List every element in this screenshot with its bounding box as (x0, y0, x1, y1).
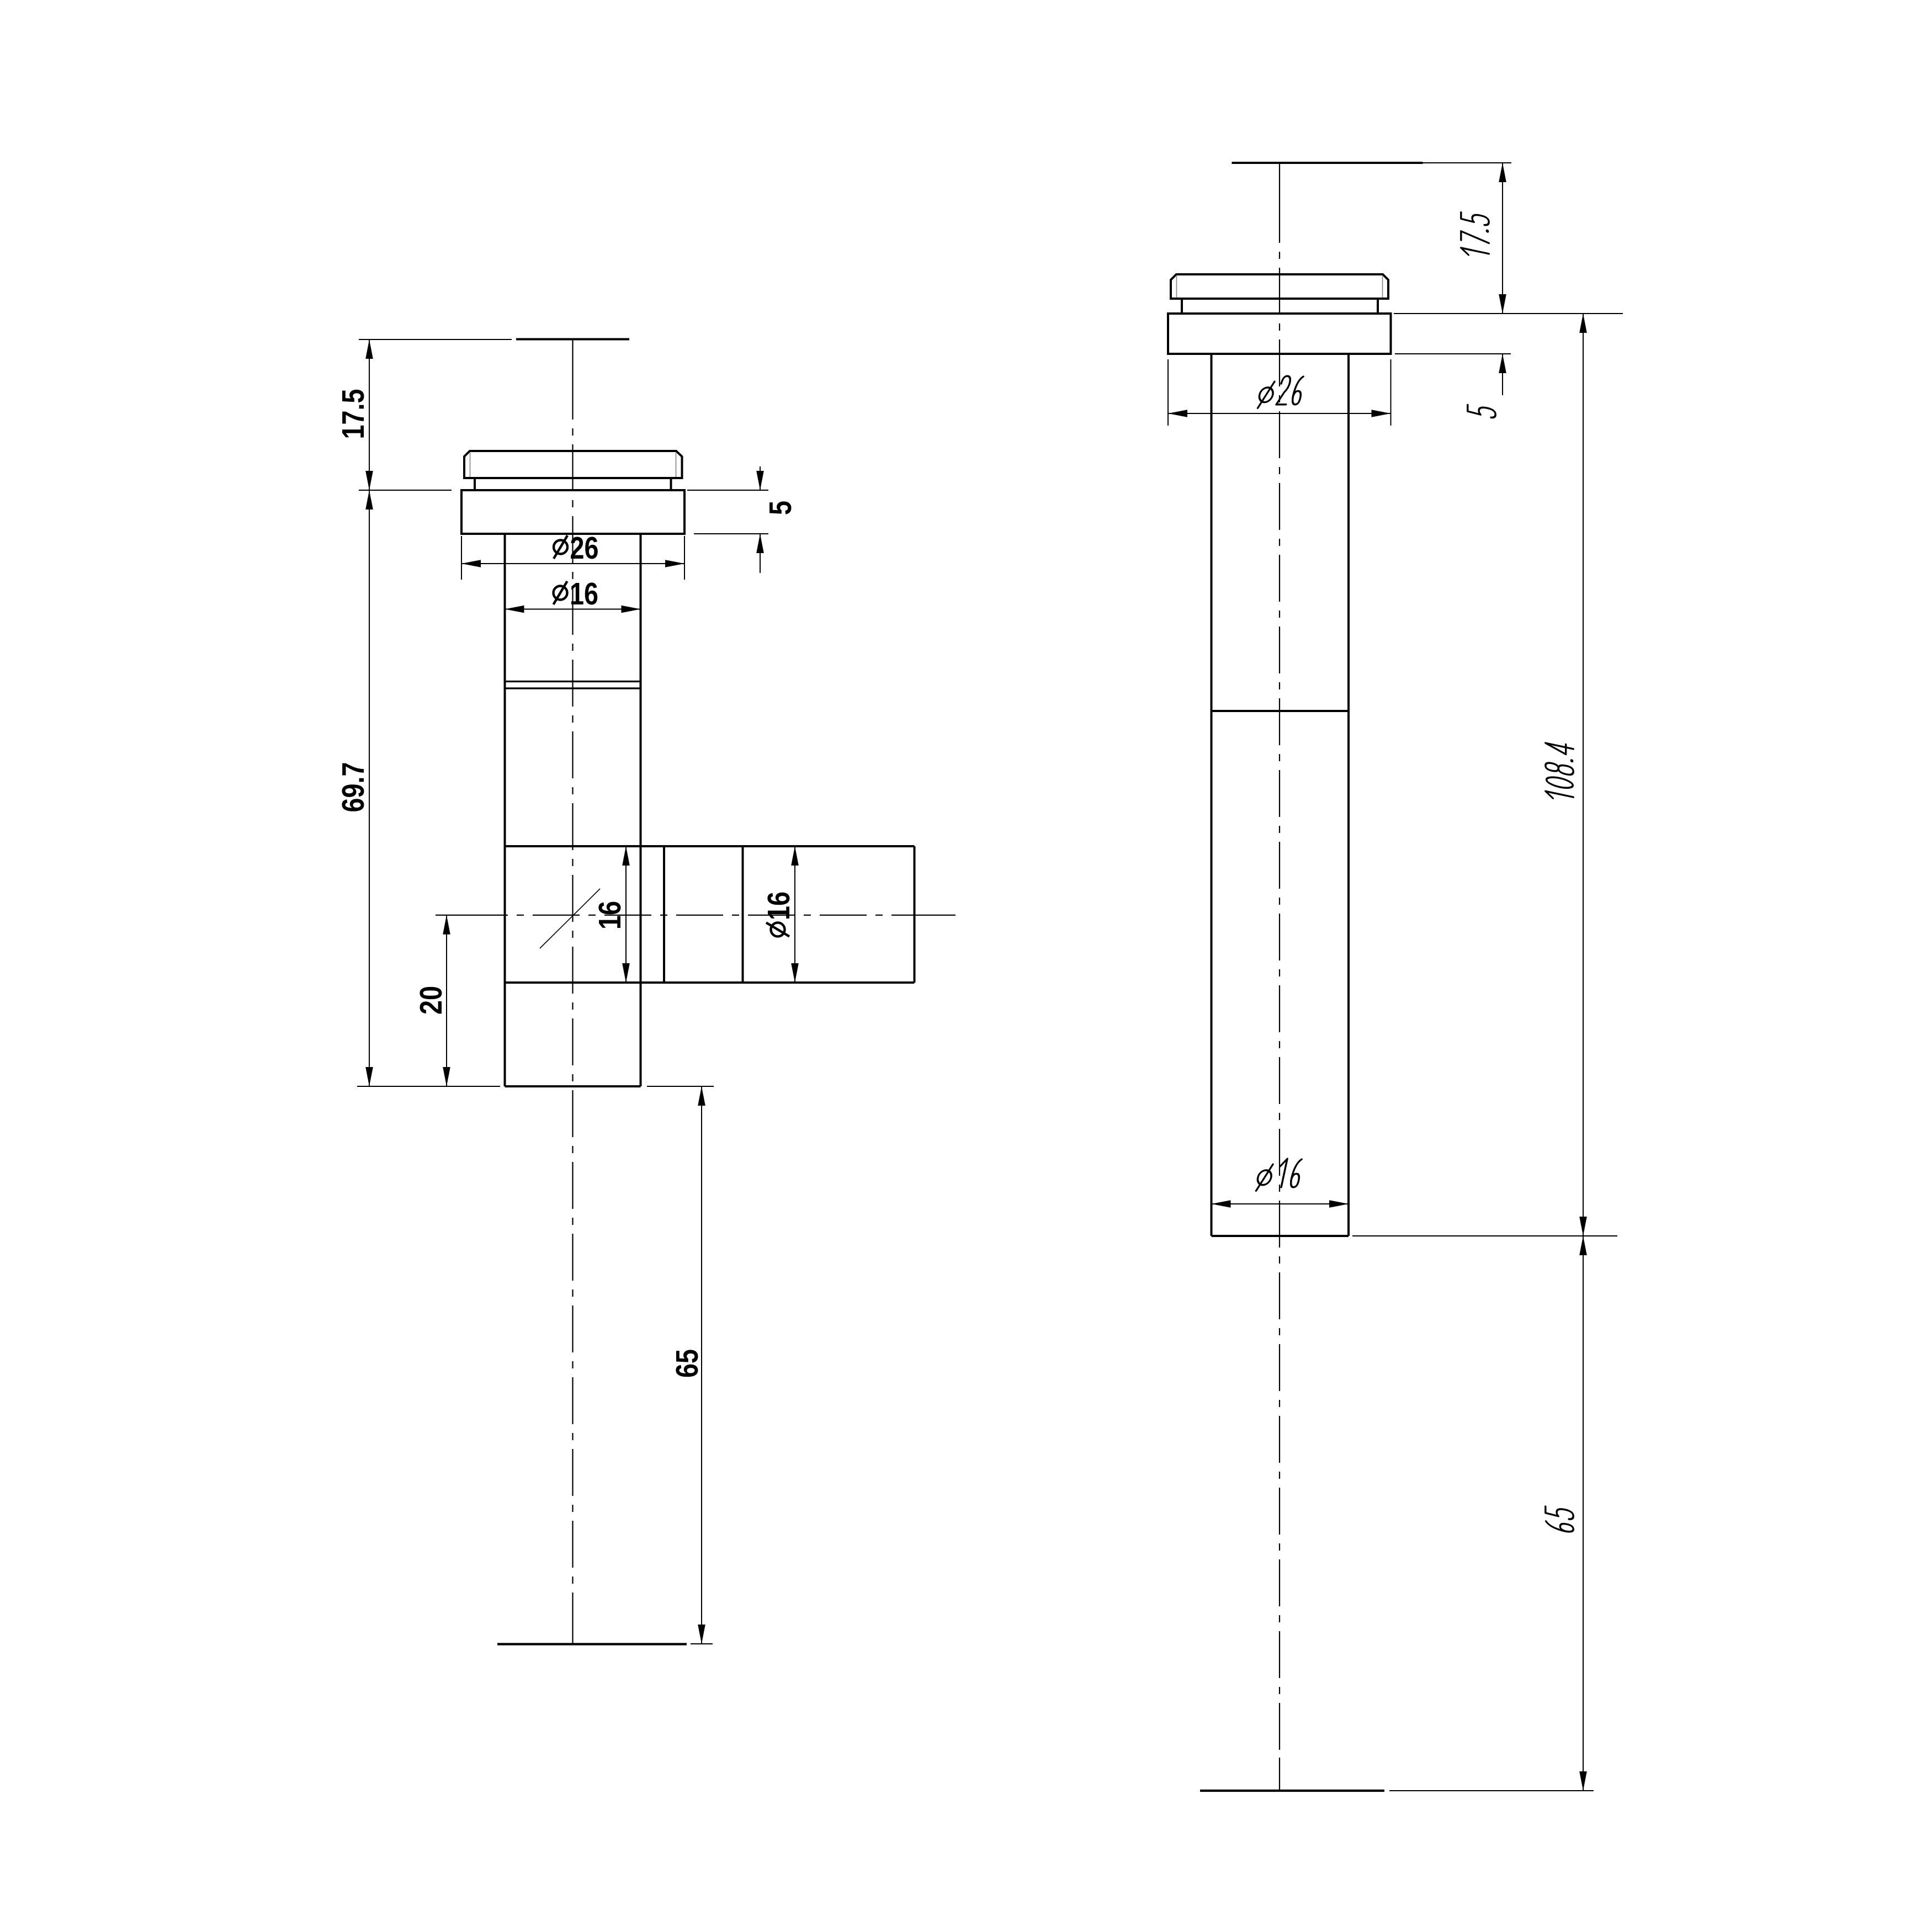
svg-text:5: 5 (763, 501, 798, 515)
svg-text:65: 65 (670, 1349, 704, 1378)
svg-text:16: 16 (570, 576, 598, 611)
svg-text:16: 16 (761, 891, 796, 920)
svg-text:26: 26 (570, 530, 599, 565)
svg-text:69.7: 69.7 (336, 762, 370, 813)
svg-text:16: 16 (592, 901, 627, 930)
svg-text:17.5: 17.5 (336, 389, 370, 439)
svg-text:20: 20 (413, 986, 448, 1015)
